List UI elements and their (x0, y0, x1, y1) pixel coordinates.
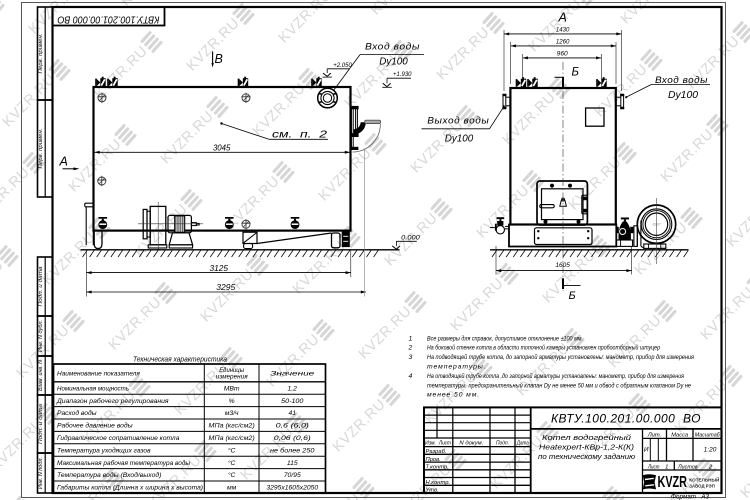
svg-text:Б: Б (572, 67, 580, 79)
svg-text:+1.930: +1.930 (393, 71, 412, 78)
svg-text:по техническому заданию: по техническому заданию (538, 453, 636, 461)
svg-text:KVZR.RU: KVZR.RU (724, 191, 750, 250)
svg-text:Перв. примен.: Перв. примен. (38, 129, 44, 169)
svg-text:KVZR.RU: KVZR.RU (356, 303, 415, 362)
svg-text:Выход воды: Выход воды (427, 116, 489, 126)
svg-text:°С: °С (228, 459, 236, 467)
svg-text:Heatexpert-КВр-1,2-К(К): Heatexpert-КВр-1,2-К(К) (539, 445, 634, 452)
svg-text:Перв. примен.: Перв. примен. (38, 34, 44, 74)
svg-text:Значение: Значение (270, 370, 314, 377)
svg-text:Листов: Листов (677, 464, 697, 470)
svg-text:960: 960 (557, 51, 569, 58)
svg-text:KVZR.RU: KVZR.RU (40, 229, 99, 288)
svg-text:1605: 1605 (555, 262, 570, 269)
svg-text:50-100: 50-100 (281, 398, 303, 405)
svg-text:1:20: 1:20 (704, 446, 717, 453)
svg-text:Б: Б (569, 290, 576, 302)
svg-text:3045: 3045 (213, 144, 231, 153)
svg-text:Разраб.: Разраб. (426, 449, 447, 455)
svg-text:МПа (кгс/см2): МПа (кгс/см2) (209, 435, 255, 442)
svg-text:1260: 1260 (556, 39, 570, 46)
svg-text:3295: 3295 (216, 283, 236, 292)
svg-text:не более 250: не более 250 (270, 446, 315, 454)
svg-text:KVZR.RU: KVZR.RU (698, 284, 750, 343)
svg-text:41: 41 (288, 410, 296, 417)
svg-text:м3/ч: м3/ч (225, 410, 239, 417)
svg-text:1: 1 (409, 335, 413, 342)
svg-text:Изм.: Изм. (425, 441, 436, 447)
svg-text:KVZR.RU: KVZR.RU (0, 164, 33, 223)
svg-text:KVZR.RU: KVZR.RU (184, 15, 243, 74)
svg-text:КВТУ.100.201.00.000 ВО: КВТУ.100.201.00.000 ВО (551, 411, 701, 425)
svg-text:Все размеры для справок, допус: Все размеры для справок, допустимое откл… (427, 334, 583, 342)
svg-text:KVZR.RU: KVZR.RU (330, 396, 389, 455)
svg-text:МВт: МВт (224, 385, 240, 392)
svg-text:1: 1 (665, 464, 668, 470)
svg-text:KVZR.RU: KVZR.RU (434, 24, 493, 83)
svg-text:KVZR.RU: KVZR.RU (0, 257, 7, 316)
svg-text:Лит.: Лит. (647, 433, 662, 439)
svg-text:3125: 3125 (210, 264, 229, 273)
svg-text:На отводящей трубе котла ,до з: На отводящей трубе котла ,до запорной ар… (427, 372, 684, 380)
svg-text:А: А (558, 10, 567, 24)
svg-text:Лист: Лист (647, 464, 659, 470)
svg-text:KVZR.RU: KVZR.RU (316, 145, 375, 204)
svg-text:Н.контр.: Н.контр. (426, 480, 451, 486)
svg-text:KVZR.RU: KVZR.RU (106, 294, 165, 353)
svg-text:0,06 (0,6): 0,06 (0,6) (274, 435, 311, 442)
svg-text:менее 50 мм.: менее 50 мм. (427, 392, 480, 399)
svg-text:В: В (215, 52, 223, 66)
svg-text:температуры.: температуры. (427, 364, 487, 371)
svg-text:Утв.: Утв. (425, 488, 439, 494)
svg-text:Котел водогрейный: Котел водогрейный (542, 434, 631, 442)
svg-text:KVZR.RU: KVZR.RU (158, 108, 217, 167)
svg-text:Дата: Дата (516, 441, 529, 447)
svg-text:2: 2 (408, 345, 413, 352)
svg-text:Температура воды (Вход/выход): Температура воды (Вход/выход) (57, 471, 161, 479)
svg-text:КВТУ.100.201.00.000 ВО: КВТУ.100.201.00.000 ВО (57, 13, 159, 24)
svg-text:Подп.: Подп. (496, 441, 509, 447)
svg-text:Dy100: Dy100 (379, 57, 408, 68)
svg-text:KVZR.RU: KVZR.RU (198, 266, 257, 325)
svg-text:Габариты котла (Длинна х ширин: Габариты котла (Длинна х ширина х высота… (57, 484, 203, 492)
svg-text:Лист: Лист (438, 441, 451, 447)
svg-text:Подп. и дата: Подп. и дата (38, 267, 44, 307)
svg-text:KVZR.RU: KVZR.RU (738, 442, 750, 500)
svg-text:Вход воды: Вход воды (655, 75, 708, 85)
svg-text:На подводящей трубе котла, д: На подводящей трубе котла, до запорной а… (427, 353, 694, 361)
svg-text:1430: 1430 (556, 26, 570, 33)
svg-text:°С: °С (228, 446, 236, 454)
svg-text:KVZR: KVZR (658, 474, 688, 491)
svg-text:МПа (кгс/см2): МПа (кгс/см2) (209, 423, 255, 430)
svg-text:КВЗР: КВЗР (652, 223, 661, 227)
svg-text:температуры, предохранительный: температуры, предохранительный клапан Dy… (427, 381, 691, 389)
svg-text:Вход воды: Вход воды (365, 41, 420, 51)
svg-text:Формат А3: Формат А3 (671, 493, 710, 500)
svg-text:KVZR.RU: KVZR.RU (606, 312, 665, 371)
svg-text:1,2: 1,2 (288, 385, 298, 392)
svg-text:KVZR.RU: KVZR.RU (618, 0, 677, 27)
svg-text:0.000: 0.000 (401, 235, 420, 242)
svg-text:На боковой стенке котла в обла: На боковой стенке котла в области топочн… (427, 344, 660, 352)
svg-text:Техническая характеристика: Техническая характеристика (133, 354, 227, 363)
svg-text:см. п. 2: см. п. 2 (272, 129, 327, 141)
svg-text:KVZR.RU: KVZR.RU (408, 117, 467, 176)
svg-text:°С: °С (228, 471, 236, 479)
svg-text:Т.контр.: Т.контр. (426, 465, 449, 471)
svg-text:КОТЕЛЬНЫЙ: КОТЕЛЬНЫЙ (689, 476, 719, 483)
svg-text:3: 3 (409, 354, 413, 361)
svg-text:Температура уходящих газов: Температура уходящих газов (57, 446, 151, 454)
svg-text:KVZR.RU: KVZR.RU (66, 136, 125, 195)
svg-text:ЗАВОД РЭП: ЗАВОД РЭП (689, 484, 715, 489)
svg-text:Инв. N подл.: Инв. N подл. (38, 457, 44, 489)
svg-text:И: И (644, 447, 649, 454)
svg-text:3295х1605х2050: 3295х1605х2050 (266, 485, 318, 492)
svg-text:Пров.: Пров. (426, 457, 441, 463)
svg-text:Подп. и дата: Подп. и дата (38, 404, 44, 444)
svg-text:Наименование показателя: Наименование показателя (57, 370, 140, 377)
svg-text:%: % (229, 398, 235, 405)
svg-text:А: А (59, 155, 68, 169)
svg-text:70/95: 70/95 (284, 472, 301, 479)
svg-text:Гидравлическое сопративление к: Гидравлическое сопративление котла (57, 434, 180, 442)
svg-text:Рабочее давление воды: Рабочее давление воды (57, 422, 133, 430)
svg-text:KVZR.RU: KVZR.RU (448, 275, 507, 334)
svg-text:Dy100: Dy100 (445, 134, 474, 145)
svg-text:Максимальная рабочая температу: Максимальная рабочая температура воды (57, 459, 190, 467)
svg-text:N докум.: N докум. (459, 441, 483, 447)
svg-text:115: 115 (287, 460, 298, 467)
svg-text:+2.050: +2.050 (333, 62, 352, 69)
svg-text:Диапазон рабочего регулировани: Диапазон рабочего регулирования (56, 397, 169, 405)
svg-text:Dy100: Dy100 (668, 90, 699, 101)
svg-text:KVZR.RU: KVZR.RU (0, 71, 59, 130)
svg-text:4: 4 (409, 373, 413, 380)
svg-text:мм: мм (227, 485, 237, 492)
svg-text:Номинальная мощность: Номинальная мощность (57, 385, 129, 392)
svg-text:измерения: измерения (216, 374, 248, 381)
svg-text:Расход воды: Расход воды (57, 409, 97, 417)
svg-text:Масштаб: Масштаб (695, 433, 721, 439)
svg-text:Инв. N дубл.: Инв. N дубл. (38, 320, 44, 352)
svg-text:KVZR.RU: KVZR.RU (500, 89, 559, 148)
svg-text:0,6 (6,0): 0,6 (6,0) (276, 423, 309, 430)
svg-text:Взам. инв. N: Взам. инв. N (38, 360, 44, 391)
svg-text:Масса: Масса (671, 433, 689, 439)
svg-text:KVZR.RU: KVZR.RU (658, 126, 717, 185)
